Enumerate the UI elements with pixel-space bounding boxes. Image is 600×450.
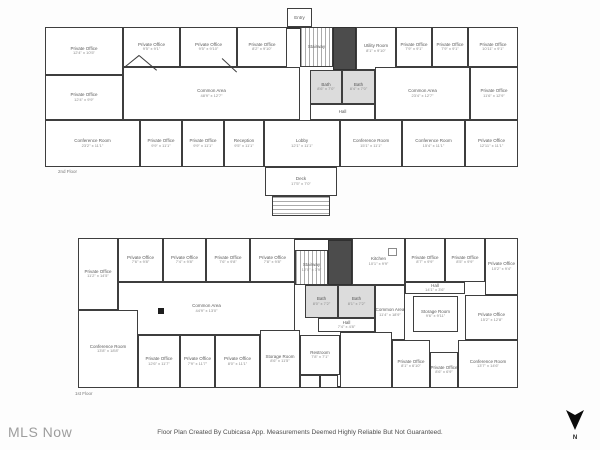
room-private-office: Private Office8'0" x 11'1" — [215, 335, 260, 388]
room-dimensions: 13'8" x 18'8" — [97, 349, 119, 354]
room-bath: Bath8'4" x 7'0" — [342, 70, 375, 104]
room-dimensions: 14'1" x 3'6" — [425, 288, 445, 293]
room — [320, 375, 338, 388]
room-conference-room: Conference Room13'8" x 18'8" — [78, 310, 138, 388]
room-private-office: Private Office9'9" x 11'1" — [140, 120, 182, 167]
room-conference-room: Conference Room15'4" x 11'1" — [402, 120, 465, 167]
room-dimensions: 8'2" x 9'10" — [252, 47, 272, 52]
room-dimensions: 11'4" x 18'9" — [379, 313, 401, 318]
room-private-office: Private Office8'5" x 9'9" — [445, 238, 485, 282]
room-private-office: Private Office12'11" x 11'1" — [465, 120, 518, 167]
room-conference-room: Conference Room13'7" x 14'6" — [458, 340, 518, 388]
room-dimensions: 10'2" x 9'4" — [492, 267, 512, 272]
room-private-office: Private Office12'4" x 10'5" — [45, 27, 123, 75]
room-dimensions: 8'5" x 9'9" — [456, 260, 474, 265]
room-dimensions: 15'2" x 12'8" — [481, 318, 503, 323]
elevator — [328, 240, 352, 285]
room-private-office: Private Office12'4" x 9'9" — [45, 75, 123, 120]
room-dimensions: 8'1" x 6'10" — [401, 364, 421, 369]
room — [300, 375, 320, 388]
north-label: N — [562, 435, 588, 441]
floor-name-label: 1st Floor — [75, 391, 93, 396]
room-private-office: Private Office7'4" x 9'8" — [163, 238, 206, 282]
north-arrow-icon — [565, 409, 585, 431]
room-private-office: Private Office8'2" x 9'10" — [237, 27, 287, 67]
room-dimensions: 13'7" x 14'6" — [477, 364, 499, 369]
fixture — [388, 248, 397, 256]
room-common-area: Common Area23'4" x 12'7" — [375, 67, 470, 120]
room-private-office: Private Office8'7" x 9'9" — [405, 238, 445, 282]
room-dimensions: 8'0" x 11'1" — [228, 362, 247, 367]
room-dimensions: 7'4" x 9'8" — [176, 260, 194, 265]
room-dimensions: 12'6" x 11'7" — [148, 362, 170, 367]
room-dimensions: 17'5" x 7'0" — [291, 182, 311, 187]
room-dimensions: 8'0" x 7'2" — [313, 302, 331, 307]
room-dimensions: 8'4" x 7'0" — [350, 87, 368, 92]
room-private-office: Private Office11'6" x 12'9" — [470, 67, 518, 120]
room-dimensions: 8'6" x 6'9" — [435, 370, 453, 375]
room-dimensions: 10'11" x 9'1" — [482, 47, 504, 52]
compass: N — [562, 409, 588, 441]
room-hall: Hall — [310, 104, 375, 120]
room-dimensions: 12'1" x 11'1" — [291, 144, 313, 149]
room-dimensions: 10'1" x 9'9" — [369, 262, 389, 267]
room-label: Entry — [294, 15, 305, 21]
room-private-office: Private Office11'2" x 14'5" — [78, 238, 118, 310]
room-dimensions: 7'8" x 7'1" — [311, 355, 329, 360]
room-restroom: Restroom7'8" x 7'1" — [300, 335, 340, 375]
room-private-office: Private Office7'8" x 9'8" — [250, 238, 295, 282]
room-dimensions: 7'9" x 11'7" — [188, 362, 207, 367]
room-common-area: Common Area48'9" x 12'7" — [123, 67, 300, 120]
room-dimensions: 7'9" x 9'1" — [405, 47, 423, 52]
floor-name-label: 2nd Floor — [58, 169, 77, 174]
room-hall: Hall14'1" x 3'6" — [405, 282, 465, 294]
room-private-office: Private Office10'2" x 9'4" — [485, 238, 518, 295]
room-hall: Hall7'4" x 4'8" — [318, 318, 375, 332]
room-lobby: Lobby12'1" x 11'1" — [264, 120, 340, 167]
room-private-office: Private Office7'6" x 9'8" — [206, 238, 250, 282]
room-dimensions: 8'6" x 7'0" — [317, 87, 335, 92]
room-conference-room: Conference Room23'2" x 11'1" — [45, 120, 140, 167]
room-bath: Bath8'1" x 7'2" — [338, 285, 375, 318]
room-dimensions: 12'4" x 9'9" — [74, 98, 94, 103]
room-private-office: Private Office7'9" x 9'1" — [432, 27, 468, 67]
room-dimensions: 9'5" x 11'1" — [234, 144, 253, 149]
room-dimensions: 11'6" x 12'9" — [483, 94, 505, 99]
room-dimensions: 9'9" x 11'1" — [193, 144, 212, 149]
room-label: Stairway — [308, 44, 325, 50]
room-dimensions: 11'2" x 14'5" — [87, 274, 109, 279]
room-dimensions: 12'4" x 10'5" — [73, 51, 95, 56]
room-dimensions: 23'2" x 11'1" — [82, 144, 104, 149]
room-stairway: Stairway12'0" x 3'9" — [295, 250, 328, 285]
room-private-office: Private Office10'11" x 9'1" — [468, 27, 518, 67]
room-private-office: Private Office15'2" x 12'8" — [465, 295, 518, 340]
room-dimensions: 7'4" x 4'8" — [338, 325, 356, 330]
room-bath: Bath8'0" x 7'2" — [305, 285, 338, 318]
room-entry: Entry — [287, 8, 312, 27]
room-private-office: Private Office12'6" x 11'7" — [138, 335, 180, 388]
room-reception: Reception9'5" x 11'1" — [224, 120, 264, 167]
room-dimensions: 12'11" x 11'1" — [480, 144, 504, 149]
floorplan-canvas: Private Office12'4" x 10'5"Private Offic… — [0, 0, 600, 450]
room-dimensions: 9'5" x 9'1" — [143, 47, 161, 52]
room-dimensions: 23'4" x 12'7" — [412, 94, 434, 99]
room-private-office: Private Office7'9" x 9'1" — [396, 27, 432, 67]
room-dimensions: 7'6" x 9'8" — [219, 260, 237, 265]
cubicasa-caption: Floor Plan Created By Cubicasa App. Meas… — [0, 429, 600, 436]
room-kitchen: Kitchen10'1" x 9'9" — [352, 238, 405, 285]
room-deck: Deck17'5" x 7'0" — [265, 167, 337, 196]
room-storage-room: Storage Room9'6" x 9'11" — [413, 296, 458, 332]
room-private-office: Private Office7'6" x 9'8" — [118, 238, 163, 282]
room-private-office: Private Office7'9" x 11'7" — [180, 335, 215, 388]
room-private-office: Private Office8'1" x 6'10" — [392, 340, 430, 388]
stairs-h — [272, 196, 330, 216]
room-dimensions: 9'5" x 9'10" — [199, 47, 219, 52]
room-dimensions: 15'4" x 11'1" — [423, 144, 445, 149]
room-dimensions: 9'6" x 9'11" — [426, 314, 445, 319]
room — [340, 332, 392, 388]
room-dimensions: 8'6" x 11'5" — [270, 359, 289, 364]
room-common-area: Common Area44'9" x 13'0" — [118, 282, 295, 335]
room-stairway: Stairway — [300, 27, 333, 67]
room-private-office: Private Office9'9" x 11'1" — [182, 120, 224, 167]
room-utility-room: Utility Room8'1" x 9'10" — [356, 27, 396, 70]
room-dimensions: 8'7" x 9'9" — [416, 260, 434, 265]
room-dimensions: 15'1" x 11'1" — [360, 144, 382, 149]
room-dimensions: 48'9" x 12'7" — [201, 94, 223, 99]
room-dimensions: 8'1" x 9'10" — [366, 49, 386, 54]
room-private-office: Private Office9'5" x 9'10" — [180, 27, 237, 67]
room-dimensions: 8'1" x 7'2" — [348, 302, 366, 307]
room-conference-room: Conference Room15'1" x 11'1" — [340, 120, 402, 167]
room-dimensions: 7'8" x 9'8" — [264, 260, 282, 265]
room-label: Hall — [339, 109, 347, 115]
room-bath: Bath8'6" x 7'0" — [310, 70, 342, 104]
room-storage-room: Storage Room8'6" x 11'5" — [260, 330, 300, 388]
elevator — [333, 27, 356, 70]
room-dimensions: 7'9" x 9'1" — [441, 47, 459, 52]
room-dimensions: 12'0" x 3'9" — [302, 268, 322, 273]
room-private-office: Private Office8'6" x 6'9" — [430, 352, 458, 388]
room-dimensions: 9'9" x 11'1" — [151, 144, 170, 149]
column — [158, 308, 164, 314]
room-dimensions: 44'9" x 13'0" — [196, 309, 218, 314]
room-dimensions: 7'6" x 9'8" — [132, 260, 150, 265]
